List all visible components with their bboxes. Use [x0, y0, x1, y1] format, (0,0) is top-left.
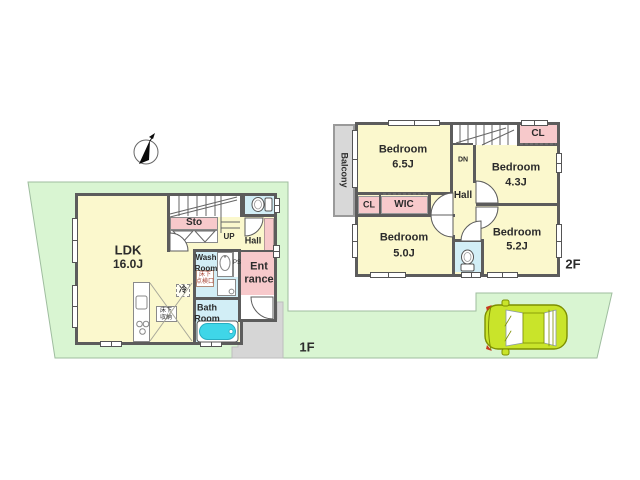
- floor-label-1f: 1F: [299, 341, 314, 354]
- bedroom-52-size: 5.2J: [506, 242, 527, 253]
- hall-1f-label: Hall: [245, 237, 262, 246]
- wall-segment: [167, 193, 170, 252]
- cl-left-label: CL: [363, 201, 375, 210]
- floorplan-canvas: LDK 16.0J Sto UP Hall Wash Room Bath Roo…: [0, 0, 640, 480]
- storage-label-2: 収納: [160, 315, 172, 321]
- entrance-label-2: rance: [244, 275, 273, 286]
- window: [556, 224, 562, 258]
- window: [352, 130, 358, 188]
- window: [388, 120, 440, 126]
- bedroom-43-label: Bedroom: [492, 163, 540, 174]
- wall-segment: [453, 143, 473, 145]
- window: [274, 198, 280, 213]
- wall-segment: [241, 250, 274, 252]
- window: [461, 272, 481, 278]
- pipe-space-label: PS: [233, 260, 241, 266]
- wall-segment: [476, 203, 560, 206]
- wall-segment: [481, 239, 484, 277]
- hatch-label-2: 点検口: [196, 279, 214, 285]
- bedroom-50-size: 5.0J: [393, 249, 414, 260]
- bath-room-label-2: Room: [194, 315, 220, 324]
- wall-segment: [193, 249, 196, 342]
- wall-segment: [473, 145, 476, 183]
- sto-label: Sto: [186, 218, 202, 228]
- wall-segment: [245, 214, 277, 217]
- window: [370, 272, 406, 278]
- wall-segment: [428, 192, 431, 217]
- window: [72, 285, 78, 328]
- window: [487, 272, 518, 278]
- bedroom-65-label: Bedroom: [379, 145, 427, 156]
- wall-segment: [355, 192, 453, 195]
- refrigerator-label: 冷: [179, 286, 187, 294]
- wall-segment: [517, 122, 520, 145]
- window: [521, 120, 548, 126]
- window: [200, 341, 222, 347]
- wall-segment: [450, 122, 453, 195]
- wall-segment: [379, 194, 381, 214]
- wall-layer: [0, 0, 640, 480]
- wall-segment: [240, 319, 277, 322]
- hatch-label-1: 床下: [199, 272, 211, 278]
- bedroom-43-size: 4.3J: [505, 178, 526, 189]
- wall-segment: [193, 249, 241, 252]
- window: [556, 153, 562, 173]
- balcony-label: Balcony: [340, 152, 349, 187]
- up-label: UP: [223, 233, 234, 241]
- bath-room-label-1: Bath: [197, 304, 217, 313]
- ldk-label: LDK: [115, 244, 142, 257]
- ldk-size-label: 16.0J: [113, 258, 143, 270]
- wall-segment: [517, 143, 560, 146]
- entrance-label-1: Ent: [250, 262, 268, 273]
- window: [72, 218, 78, 263]
- window: [352, 224, 358, 258]
- wall-segment: [75, 193, 277, 196]
- window: [100, 341, 122, 347]
- bedroom-65-size: 6.5J: [392, 160, 413, 171]
- window: [273, 245, 280, 258]
- wash-room-label-1: Wash: [195, 254, 216, 262]
- bedroom-52-label: Bedroom: [493, 228, 541, 239]
- floor-label-2f: 2F: [565, 258, 580, 271]
- wall-segment: [355, 214, 455, 217]
- wall-segment: [455, 239, 484, 242]
- bedroom-50-label: Bedroom: [380, 233, 428, 244]
- hall-2f-label: Hall: [454, 191, 472, 201]
- dn-label: DN: [458, 157, 468, 164]
- storage-label-1: 床下: [160, 308, 172, 314]
- wic-label: WIC: [394, 200, 413, 210]
- wall-segment: [193, 297, 240, 300]
- cl-top-label: CL: [531, 129, 544, 139]
